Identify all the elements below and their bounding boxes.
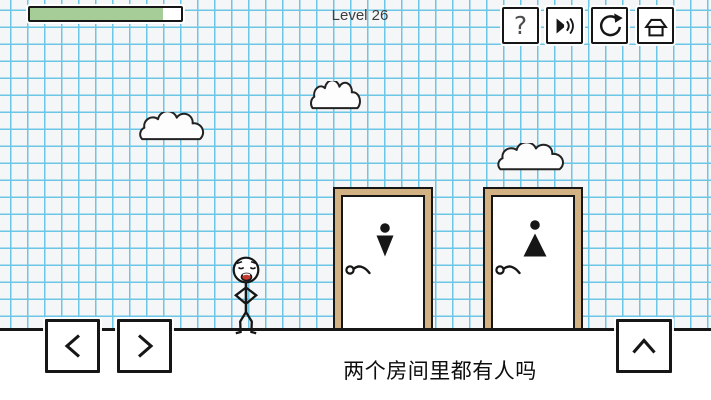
cloud-icon [307, 81, 363, 111]
home-button[interactable] [637, 7, 674, 44]
cloud [307, 81, 363, 111]
stickman-character[interactable] [225, 250, 269, 336]
cloud-icon [135, 112, 207, 142]
ground-line [0, 328, 711, 331]
progress-fill [30, 8, 163, 20]
cloud-icon [493, 143, 567, 172]
door-female[interactable] [483, 187, 583, 330]
chevron-right-icon [128, 329, 162, 363]
restart-icon [595, 11, 625, 41]
door-panel [341, 195, 425, 331]
sound-button[interactable] [546, 7, 583, 44]
move-right-button[interactable] [117, 319, 172, 373]
question-mark-icon: ? [514, 13, 527, 38]
level-label: Level 26 [332, 7, 389, 24]
restart-button[interactable] [591, 7, 628, 44]
progress-bar [28, 6, 183, 22]
door-male[interactable] [333, 187, 433, 330]
speaker-icon [550, 11, 580, 41]
cloud [135, 112, 207, 142]
jump-button[interactable] [616, 319, 672, 373]
chevron-left-icon [56, 329, 90, 363]
home-icon [641, 11, 671, 41]
cloud [493, 143, 567, 172]
question-text: 两个房间里都有人吗 [343, 355, 537, 385]
help-button[interactable]: ? [502, 7, 539, 44]
game-stage: Level 26 ? [0, 0, 711, 400]
door-panel [491, 195, 575, 331]
move-left-button[interactable] [45, 319, 100, 373]
chevron-up-icon [627, 329, 661, 363]
